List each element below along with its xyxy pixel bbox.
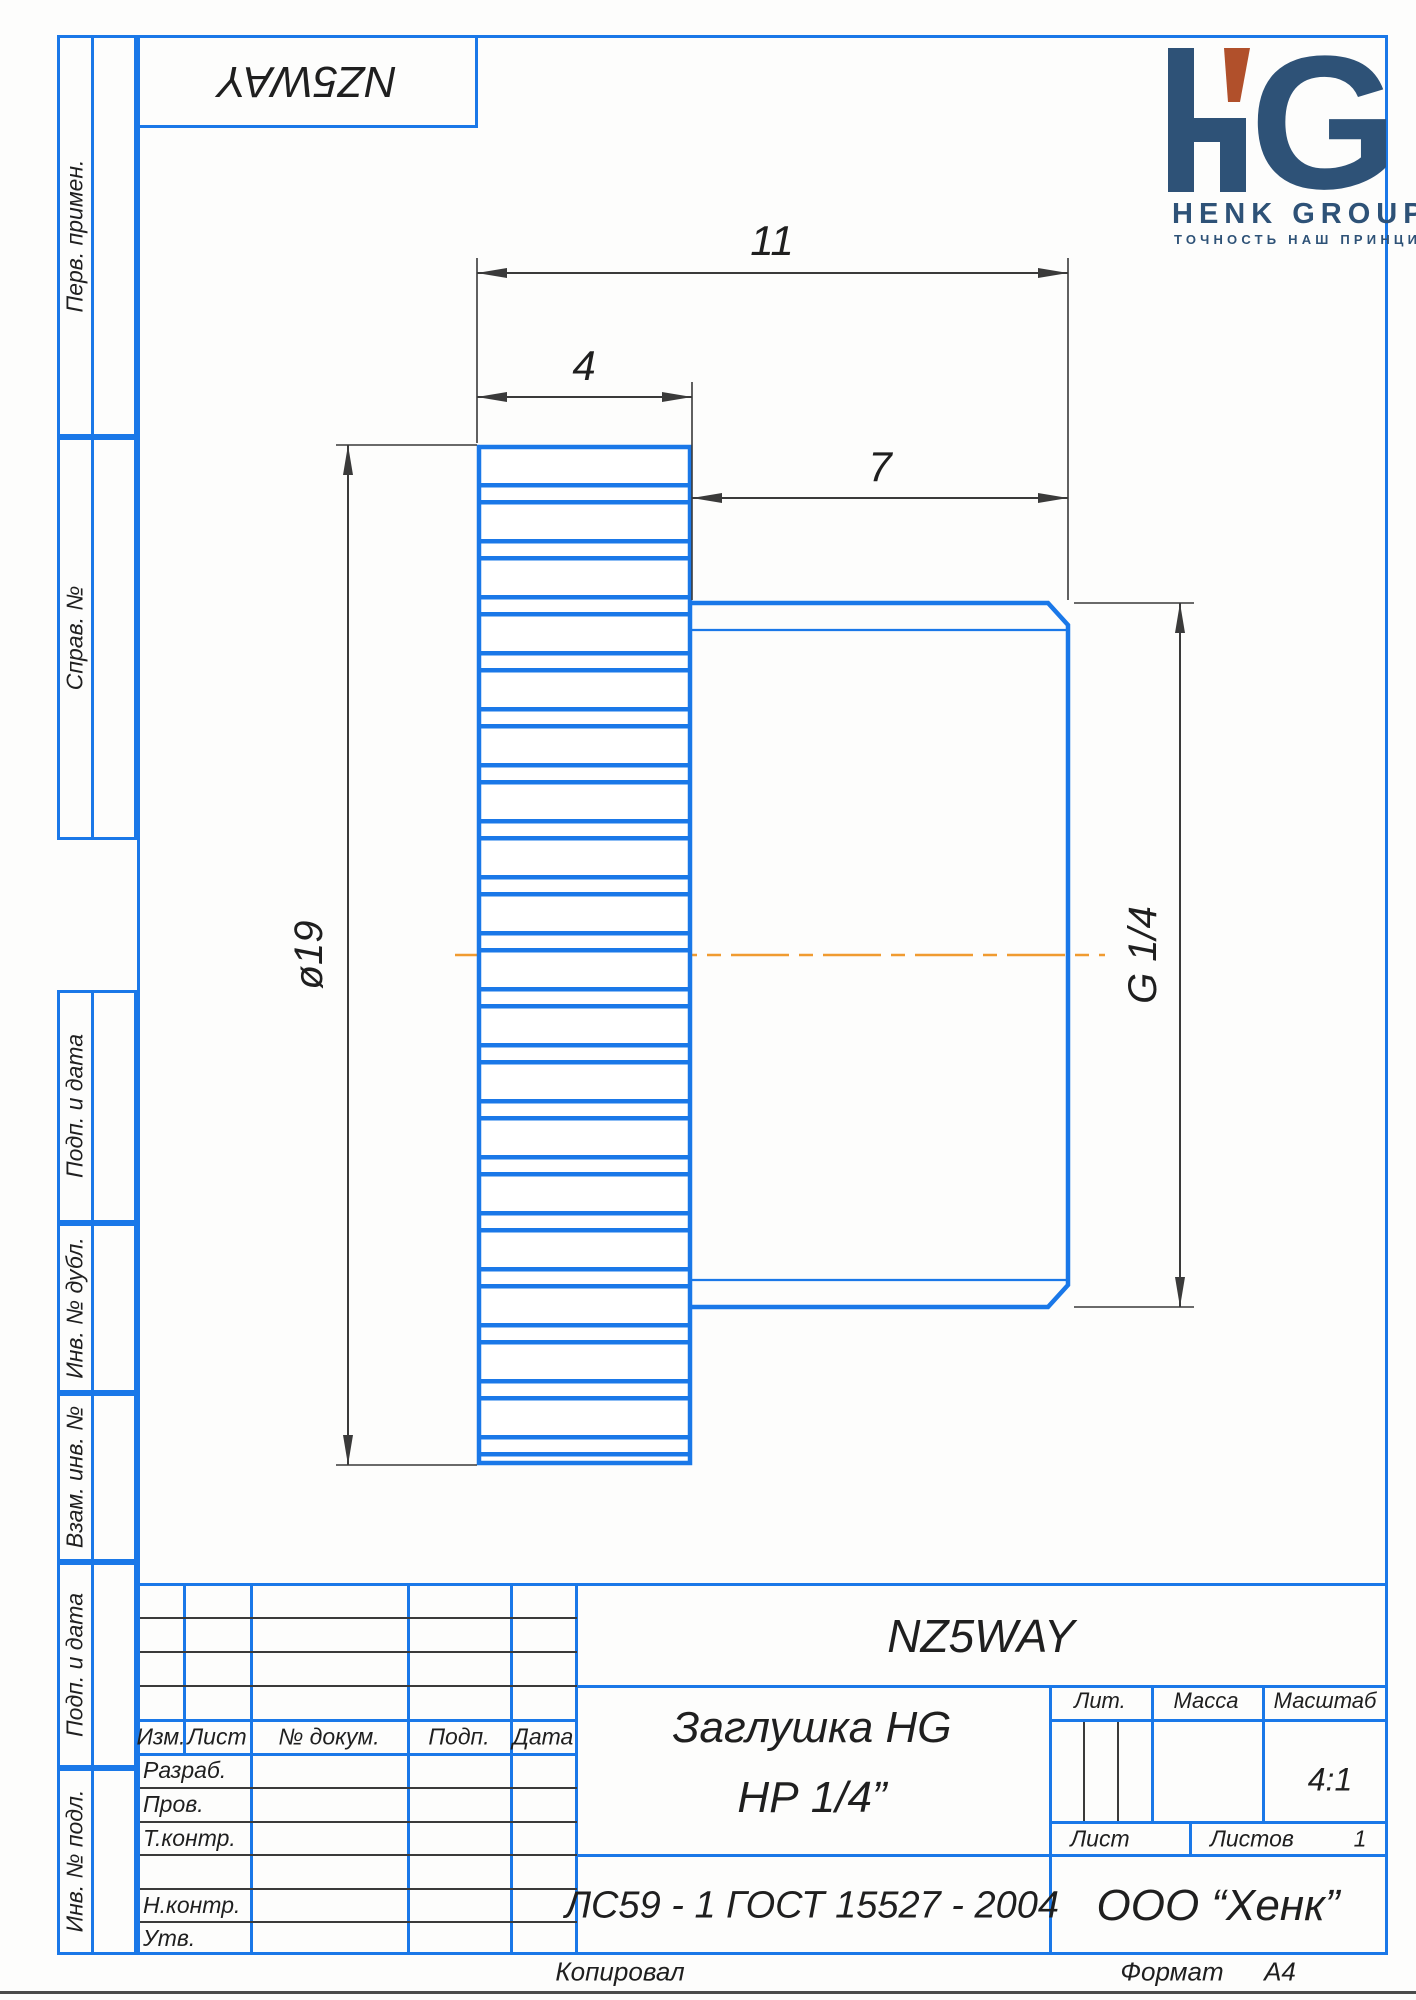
tb-v-list [250,1583,253,1955]
drawing-sheet: Перв. примен. Справ. № Подп. и дата Инв.… [0,0,1416,2000]
tb-label-t-kontr: Т.контр. [143,1825,236,1852]
tb-label-utv: Утв. [143,1925,195,1952]
tb-doc-code: NZ5WAY [887,1609,1074,1663]
tb-rev-row-line [140,1651,577,1653]
tb-label-masshtab: Масштаб [1274,1688,1377,1714]
tb-label-list: Лист [187,1724,246,1751]
dim-head-diameter: ø19 [287,921,331,990]
tb-part-name-line2: НР 1/4” [737,1773,886,1823]
tb-h-header-top [137,1719,578,1722]
dim-knurl-length: 4 [572,342,595,389]
tb-rev-row-line [140,1617,577,1619]
tb-v-list-listov [1189,1821,1192,1854]
tb-label-list-small: Лист [1070,1826,1129,1853]
tb-part-name-line1: Заглушка HG [673,1703,952,1753]
dim-thread-length: 7 [868,443,893,490]
tb-h-lit-cells-bottom [1049,1821,1388,1824]
tb-label-data: Дата [513,1724,574,1751]
tb-label-lit: Лит. [1074,1688,1126,1714]
tb-h-header-bottom [137,1753,578,1756]
dim-overall-length: 11 [750,217,794,264]
tb-sig-row-line [140,1787,577,1789]
footer-format-label: Формат [1120,1957,1223,1988]
tb-sig-row-line [140,1888,577,1890]
tb-h-name-bottom [575,1854,1388,1857]
titleblock-top [137,1583,1388,1586]
footer-format-value: А4 [1264,1957,1296,1988]
knurled-head [479,447,690,1463]
tb-lit-divider [1083,1722,1085,1821]
footer-kopiroval: Копировал [555,1957,684,1988]
tb-v-lit-massa [1151,1685,1154,1821]
tb-sheets-value: 1 [1354,1826,1367,1853]
tb-sig-row-line [140,1921,577,1923]
tb-company: ООО “Хенк” [1096,1881,1339,1931]
tb-rev-row-line [140,1685,577,1687]
tb-sig-row-line [140,1854,577,1856]
tb-v-massa-masshtab [1262,1685,1265,1821]
tb-h-lit-header-bottom [1049,1719,1388,1722]
tb-v-dokum [407,1583,410,1955]
tb-label-razrab: Разраб. [143,1757,226,1784]
tb-material: ЛС59 - 1 ГОСТ 15527 - 2004 [565,1885,1059,1928]
tb-label-prov: Пров. [143,1791,204,1818]
tb-label-n-kontr: Н.контр. [143,1892,240,1919]
tb-label-listov: Листов [1210,1826,1294,1853]
tb-label-massa: Масса [1173,1688,1238,1714]
tb-label-izm: Изм. [136,1724,185,1751]
dimension-arrows [343,268,1185,1465]
dim-thread-spec: G 1/4 [1121,906,1165,1004]
tb-sig-row-line [140,1821,577,1823]
tb-h-name-top [575,1685,1388,1688]
extension-lines [336,258,1194,1465]
tb-scale-value: 4:1 [1308,1762,1352,1799]
tb-label-n-dokum: № докум. [278,1724,379,1751]
tb-lit-divider [1117,1722,1119,1821]
tb-label-podp: Подп. [428,1724,489,1751]
page-edge-line [0,1991,1416,1994]
dimension-lines [348,273,1180,1465]
tb-v-podp [510,1583,513,1955]
